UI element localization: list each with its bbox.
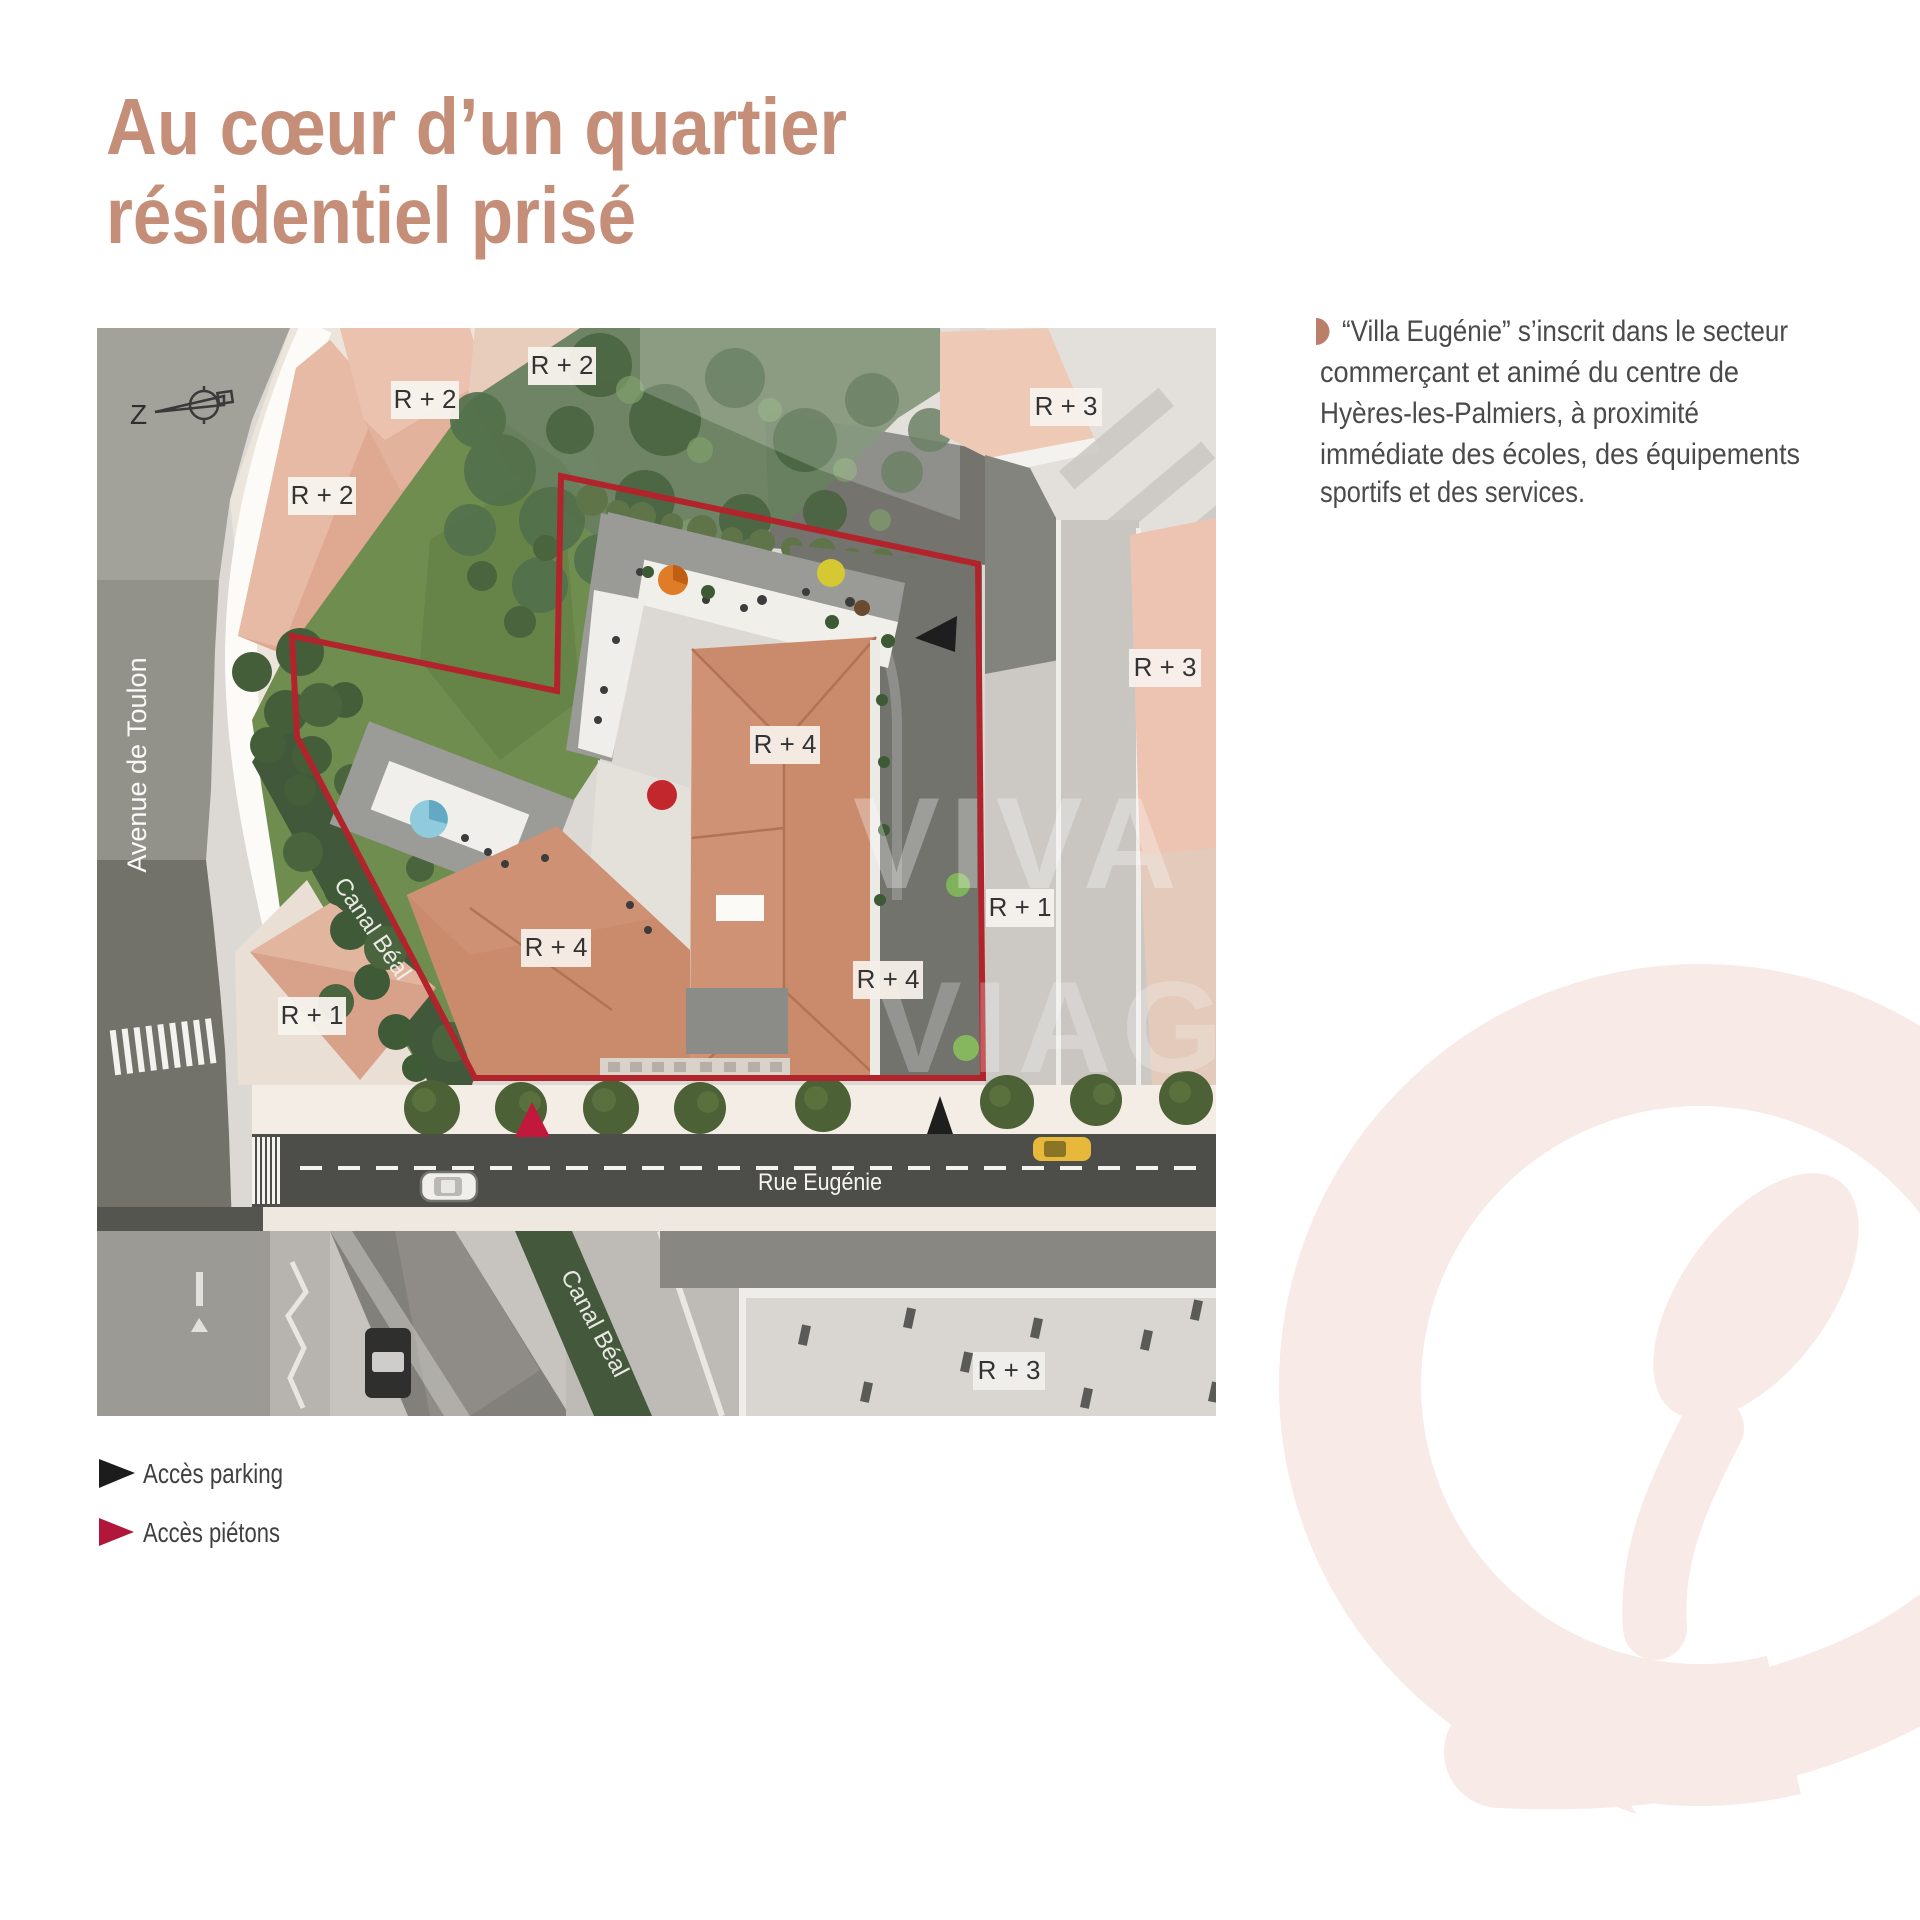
svg-text:Avenue de Toulon: Avenue de Toulon <box>122 657 152 872</box>
svg-text:Rue Eugénie: Rue Eugénie <box>758 1169 882 1196</box>
svg-text:résidentiel prisé: résidentiel prisé <box>106 171 636 260</box>
svg-text:R + 2: R + 2 <box>394 384 457 414</box>
svg-text:immédiate des écoles, des équi: immédiate des écoles, des équipements <box>1320 438 1800 471</box>
svg-text:R + 4: R + 4 <box>525 932 588 962</box>
svg-text:R + 3: R + 3 <box>1035 391 1098 421</box>
svg-text:commerçant et animé du centre: commerçant et animé du centre de <box>1320 356 1739 389</box>
svg-text:Hyères-les-Palmiers, à proximi: Hyères-les-Palmiers, à proximité <box>1320 397 1699 430</box>
svg-text:R + 4: R + 4 <box>857 964 920 994</box>
svg-text:R + 1: R + 1 <box>281 1000 344 1030</box>
svg-text:R + 2: R + 2 <box>291 480 354 510</box>
svg-text:R + 2: R + 2 <box>531 350 594 380</box>
svg-text:R + 4: R + 4 <box>754 729 817 759</box>
svg-text:R + 1: R + 1 <box>989 892 1052 922</box>
svg-text:Accès parking: Accès parking <box>143 1458 283 1489</box>
svg-text:“Villa Eugénie” s’inscrit dans: “Villa Eugénie” s’inscrit dans le secteu… <box>1342 315 1788 348</box>
svg-text:R + 3: R + 3 <box>1134 652 1197 682</box>
svg-text:sportifs et des services.: sportifs et des services. <box>1320 476 1585 509</box>
svg-text:Accès piétons: Accès piétons <box>143 1517 280 1548</box>
svg-text:Au cœur d’un quartier: Au cœur d’un quartier <box>106 82 847 171</box>
svg-text:R + 3: R + 3 <box>978 1355 1041 1385</box>
svg-text:Z: Z <box>130 399 147 430</box>
